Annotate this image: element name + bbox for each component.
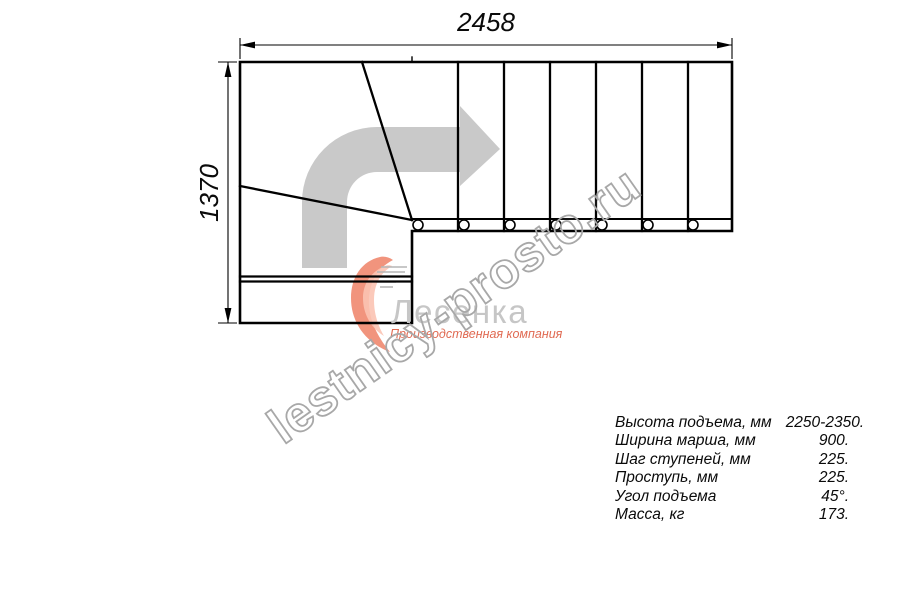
spec-label: Высота подъема, мм [615, 414, 772, 432]
spec-row: Шаг ступеней, мм 225. [615, 451, 849, 469]
spec-value: 45°. [807, 488, 849, 506]
spec-row: Угол подъема 45°. [615, 488, 849, 506]
width-dimension-label: 2458 [240, 7, 732, 38]
dimension-lines [218, 38, 732, 323]
spec-value: 225. [805, 469, 849, 487]
height-dimension-label: 1370 [194, 148, 220, 238]
baluster-circles [413, 220, 698, 230]
staircase-drawing-page: 2458 1370 lestnicy-prosto.ru Лесенка Про… [0, 0, 900, 600]
specs-table: Высота подъема, мм 2250-2350. Ширина мар… [615, 414, 849, 524]
spec-label: Шаг ступеней, мм [615, 451, 751, 469]
spec-label: Ширина марша, мм [615, 432, 756, 450]
logo-tagline: Производственная компания [390, 327, 562, 341]
spec-value: 900. [805, 432, 849, 450]
spec-row: Масса, кг 173. [615, 506, 849, 524]
spec-row: Ширина марша, мм 900. [615, 432, 849, 450]
spec-value: 2250-2350. [772, 414, 864, 432]
spec-label: Угол подъема [615, 488, 716, 506]
spec-value: 173. [805, 506, 849, 524]
spec-value: 225. [805, 451, 849, 469]
spec-label: Проступь, мм [615, 469, 718, 487]
spec-row: Высота подъема, мм 2250-2350. [615, 414, 849, 432]
logo-brand-name: Лесенка [391, 293, 528, 331]
spec-row: Проступь, мм 225. [615, 469, 849, 487]
spec-label: Масса, кг [615, 506, 684, 524]
